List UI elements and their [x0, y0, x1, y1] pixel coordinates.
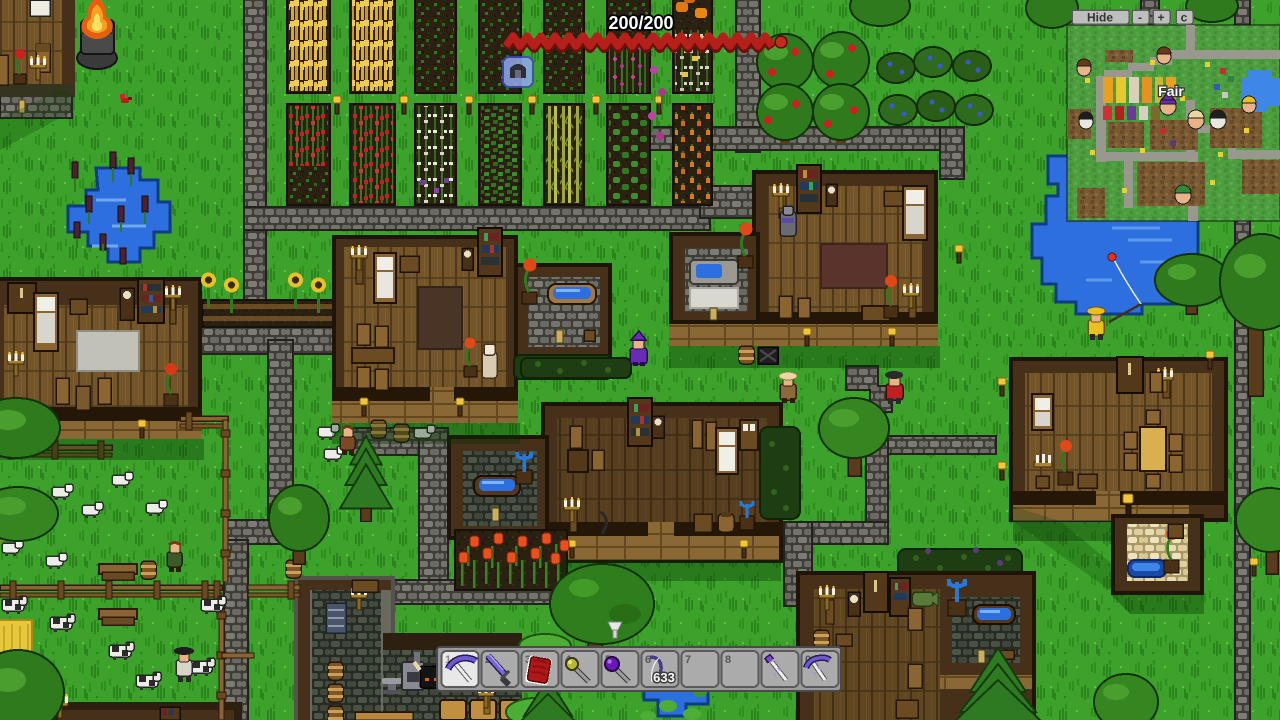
svg-text:+: + [1157, 11, 1164, 25]
svg-text:Hide: Hide [1087, 11, 1113, 25]
svg-text:633: 633 [653, 670, 675, 685]
svg-text:200/200: 200/200 [608, 13, 673, 33]
svg-text:7: 7 [685, 654, 691, 666]
svg-text:8: 8 [725, 654, 731, 666]
svg-text:-: - [1138, 11, 1142, 25]
svg-text:Fair: Fair [1158, 83, 1184, 99]
svg-text:c: c [1181, 11, 1188, 25]
